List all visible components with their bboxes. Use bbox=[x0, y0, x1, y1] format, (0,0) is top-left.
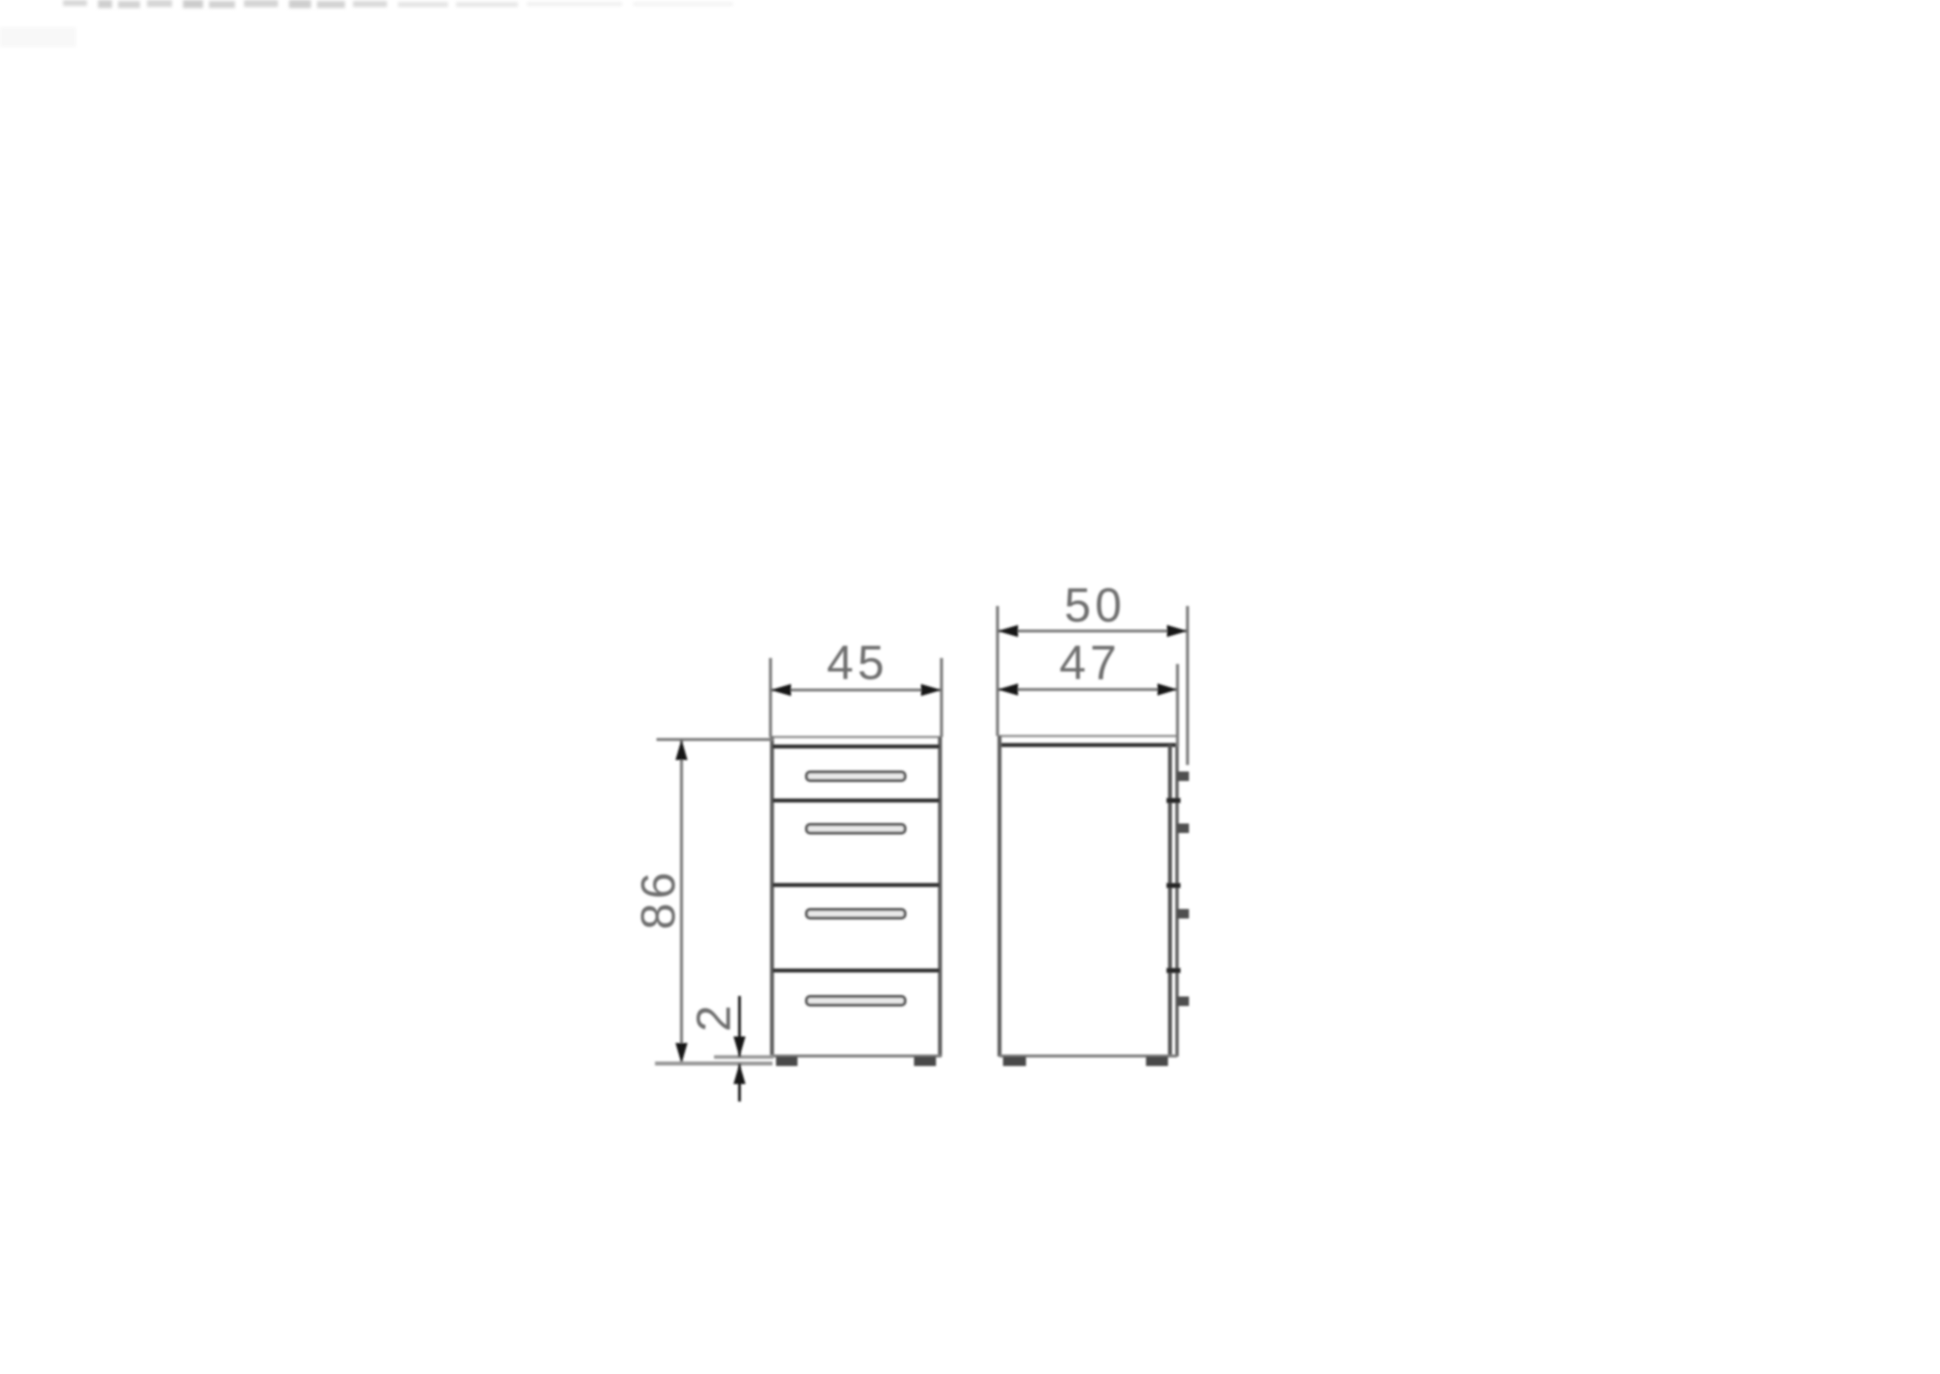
svg-text:47: 47 bbox=[1059, 637, 1120, 690]
svg-text:86: 86 bbox=[633, 868, 686, 929]
svg-text:45: 45 bbox=[827, 637, 888, 690]
svg-text:2: 2 bbox=[688, 1005, 741, 1032]
svg-text:50: 50 bbox=[1064, 580, 1125, 633]
